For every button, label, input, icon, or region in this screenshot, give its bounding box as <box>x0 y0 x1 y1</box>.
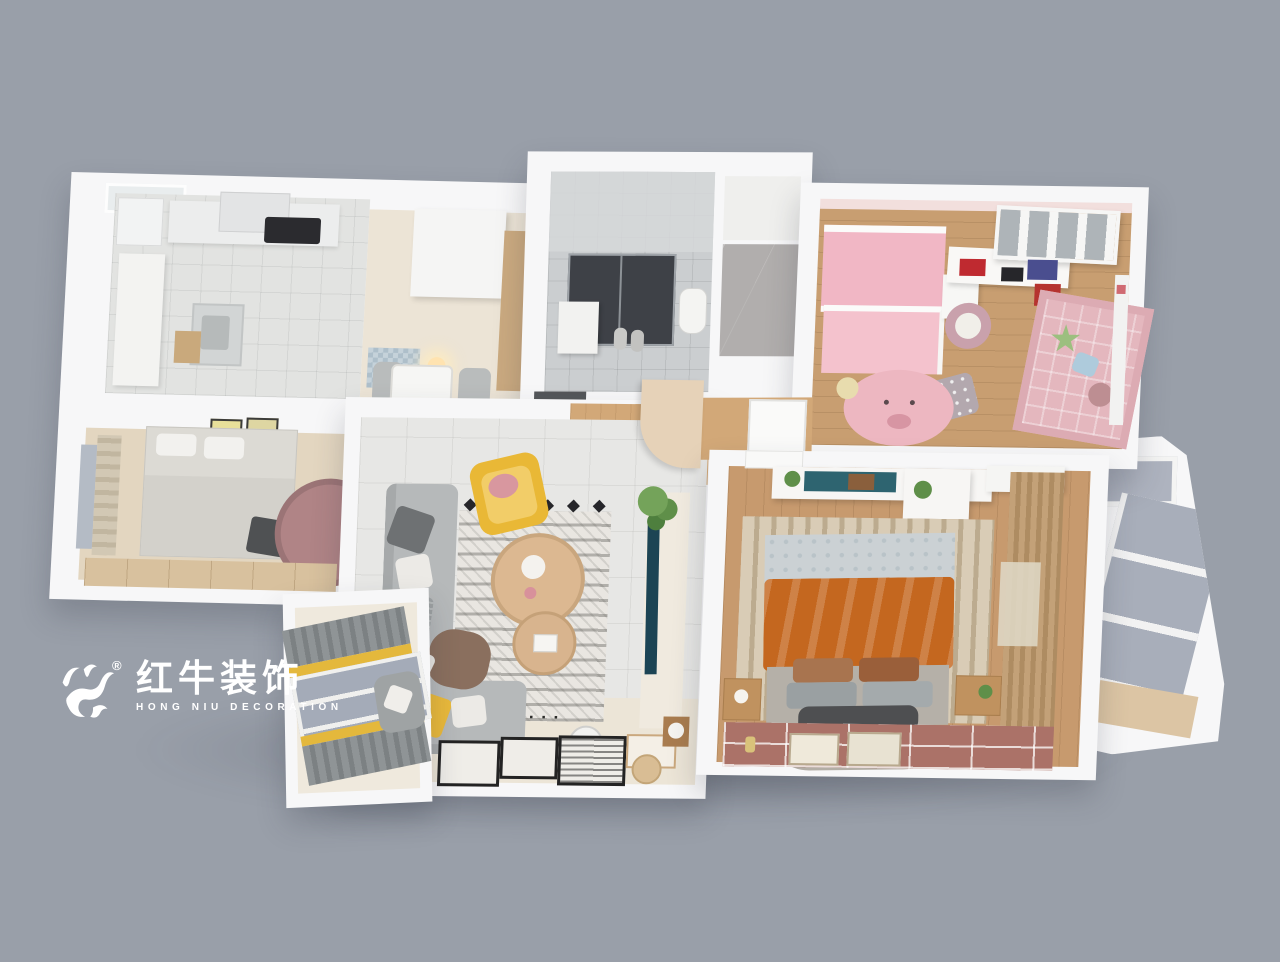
floor-plan <box>0 0 1280 962</box>
bed-pillow <box>156 433 197 456</box>
entry-wardrobe <box>410 208 507 298</box>
fridge <box>116 197 164 246</box>
toilet <box>678 288 707 334</box>
paper-roll-stand <box>662 716 689 746</box>
floor-poster <box>499 737 559 780</box>
bay-armchair <box>372 669 427 734</box>
kids-bed-canopy <box>821 225 947 314</box>
pillow-gray <box>862 681 932 708</box>
kitchen-counter-left <box>112 253 165 386</box>
nightstand-plant <box>978 685 993 699</box>
slippers <box>614 328 628 350</box>
pig-eye <box>884 400 889 405</box>
bathroom-vanity <box>557 302 599 354</box>
table-book <box>533 634 558 652</box>
render-stage: ® 红牛装饰 HONG NIU DECORATION <box>0 0 1280 960</box>
side-shelf <box>903 468 971 519</box>
brand-text: 红牛装饰 HONG NIU DECORATION <box>136 660 343 713</box>
brand-name-english: HONG NIU DECORATION <box>136 702 343 713</box>
toy-box-galaxy <box>1027 260 1058 280</box>
pillow-rust <box>793 658 853 683</box>
kids-bedroom-block <box>789 182 1149 469</box>
brand-name-chinese: 红牛装饰 <box>136 660 343 699</box>
armchair-cushion <box>955 313 982 339</box>
bull-logo-icon: ® <box>56 660 122 726</box>
floor-poster <box>437 740 501 787</box>
bedroom-wardrobe <box>84 558 337 592</box>
sink-basin <box>200 315 230 350</box>
scene-background: { "scene": { "type": "3d-apartment-floor… <box>0 0 1280 960</box>
pillow-rust <box>859 657 919 682</box>
tablet-dark <box>1001 267 1024 281</box>
laptop-red <box>959 259 986 276</box>
leaning-frame <box>846 732 901 767</box>
orange-blanket <box>763 577 954 671</box>
kids-bed <box>821 305 945 375</box>
bay-armchair-pillow <box>383 684 414 715</box>
corridor-door <box>747 399 807 454</box>
utility-upper-shelf <box>723 176 801 240</box>
registered-mark: ® <box>112 658 122 673</box>
master-bedroom-block <box>696 450 1109 781</box>
kids-bookshelf <box>993 205 1121 265</box>
utility-floor <box>719 244 799 356</box>
sofa-pillow-white <box>450 694 487 728</box>
floor-poster <box>557 735 627 786</box>
cooktop <box>264 217 321 244</box>
brand-logo: ® 红牛装饰 HONG NIU DECORATION <box>56 660 343 726</box>
nightstand <box>954 675 1002 716</box>
nightstand-lamp <box>734 689 749 703</box>
nightstand <box>722 678 762 721</box>
table-cup <box>524 587 536 599</box>
bathroom-upper-wall <box>549 172 715 253</box>
sheer-curtain <box>997 562 1040 647</box>
desk-wood-box <box>848 474 875 490</box>
leaning-frame <box>788 733 839 766</box>
gold-bottle <box>745 736 756 752</box>
window-flower-box <box>1116 285 1125 294</box>
table-plate <box>521 555 546 579</box>
pillow-gray <box>786 682 856 709</box>
bed-pillow <box>204 437 245 460</box>
kitchen-crate <box>174 331 202 364</box>
pig-snout <box>887 414 912 429</box>
paper-roll <box>668 723 685 739</box>
